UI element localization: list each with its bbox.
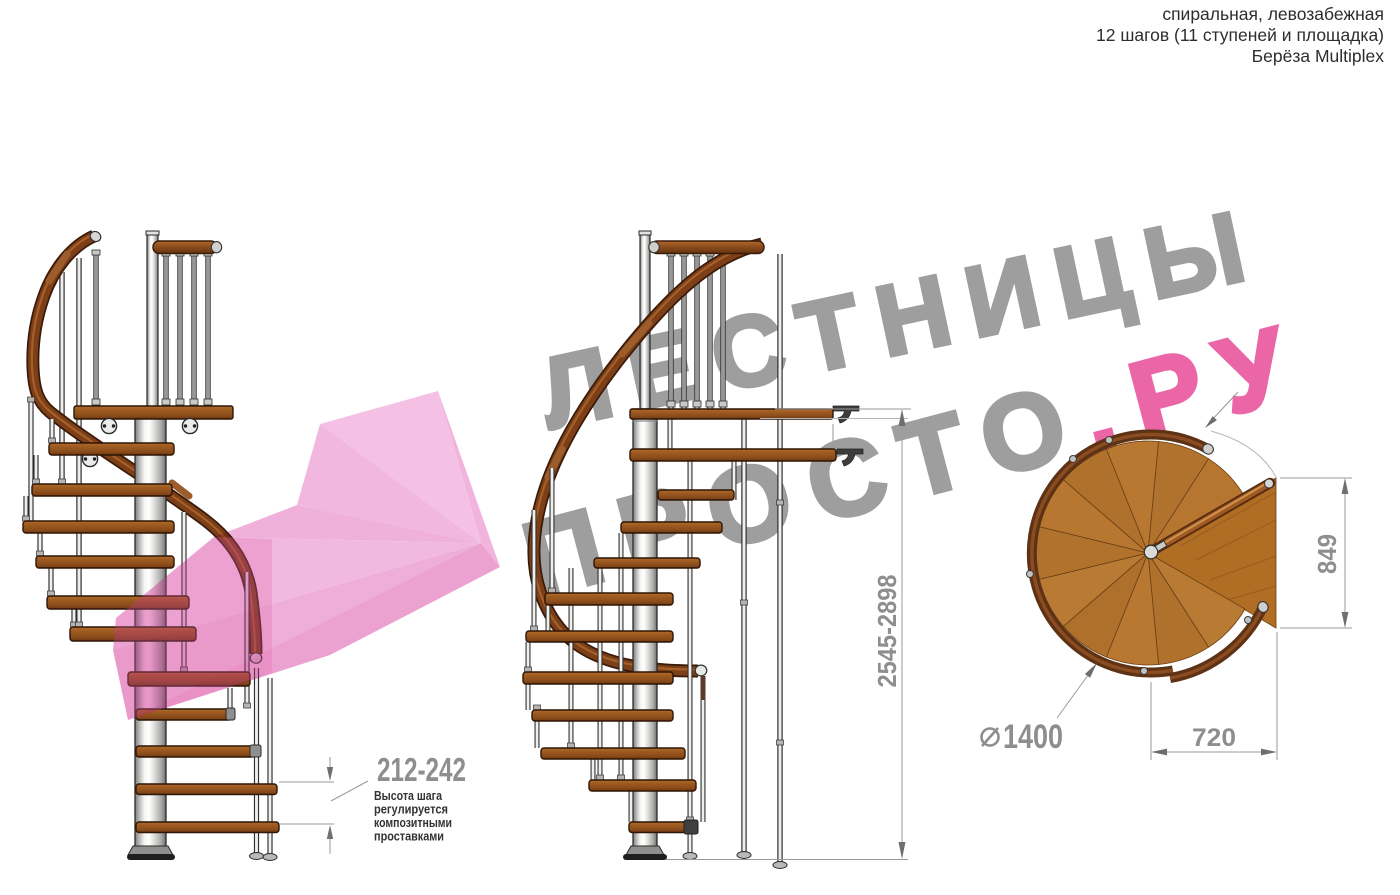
svg-text:композитными: композитными bbox=[374, 816, 452, 830]
svg-text:Высота шага: Высота шага bbox=[374, 789, 443, 803]
svg-text:849: 849 bbox=[1312, 534, 1342, 574]
svg-text:2545-2898: 2545-2898 bbox=[872, 575, 902, 688]
svg-text:проставками: проставками bbox=[374, 830, 444, 844]
svg-text:Берёза Multiplex: Берёза Multiplex bbox=[1252, 46, 1385, 66]
svg-text:спиральная, левозабежная: спиральная, левозабежная bbox=[1162, 4, 1384, 24]
svg-text:212-242: 212-242 bbox=[377, 751, 466, 788]
svg-text:720: 720 bbox=[1192, 724, 1236, 752]
svg-text:1400: 1400 bbox=[1003, 718, 1063, 756]
svg-text:регулируется: регулируется bbox=[374, 803, 448, 817]
svg-text:12 шагов (11 ступеней и площад: 12 шагов (11 ступеней и площадка) bbox=[1096, 25, 1384, 45]
